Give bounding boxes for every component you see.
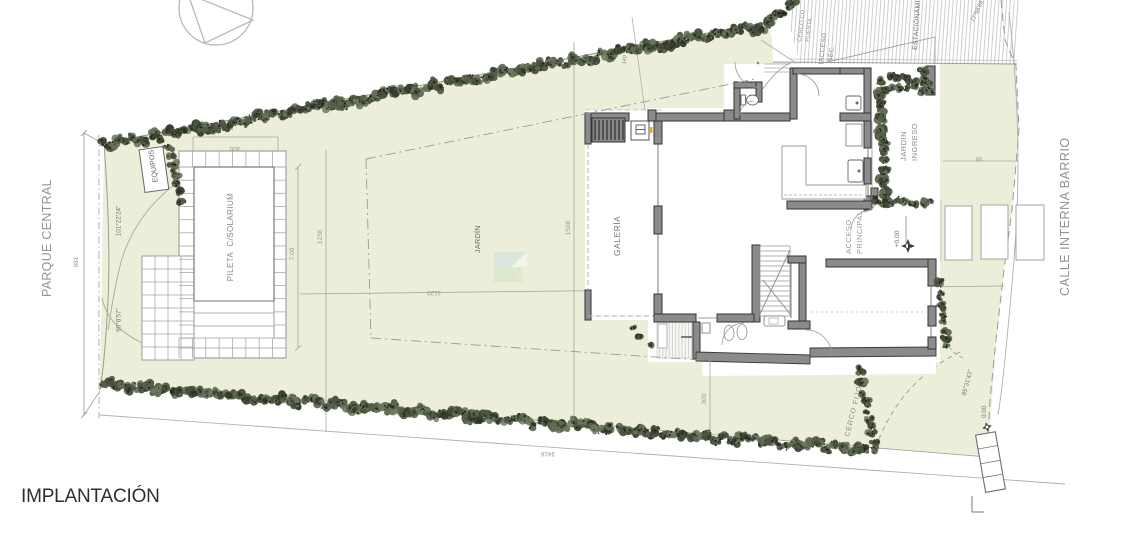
svg-text:981: 981 (73, 256, 80, 267)
svg-text:300: 300 (701, 393, 708, 404)
svg-text:INGRESO: INGRESO (910, 123, 919, 161)
svg-text:JARDIN: JARDIN (899, 131, 908, 161)
svg-text:PILETA C/SOLARIUM: PILETA C/SOLARIUM (226, 193, 235, 281)
svg-text:101°22'24": 101°22'24" (115, 206, 123, 236)
svg-text:PARQUE CENTRAL: PARQUE CENTRAL (40, 179, 54, 297)
svg-text:GALERÍA: GALERÍA (612, 216, 622, 256)
svg-text:JARDÍN: JARDÍN (473, 225, 482, 253)
svg-text:1238: 1238 (317, 229, 324, 244)
svg-text:CALLE INTERNA BARRIO: CALLE INTERNA BARRIO (1058, 137, 1072, 296)
svg-text:PRINCIPAL: PRINCIPAL (855, 210, 864, 254)
svg-text:IMPLANTACIÓN: IMPLANTACIÓN (21, 485, 160, 507)
svg-text:3416: 3416 (540, 450, 555, 457)
svg-text:90°8'57": 90°8'57" (115, 308, 123, 331)
svg-text:ACCESO: ACCESO (844, 219, 853, 254)
svg-text:1120: 1120 (427, 289, 441, 296)
svg-text:+0.00: +0.00 (894, 230, 901, 247)
svg-text:0.00: 0.00 (981, 405, 988, 418)
svg-text:7.00: 7.00 (289, 247, 296, 260)
svg-text:1508: 1508 (565, 220, 572, 235)
svg-text:140: 140 (621, 55, 628, 65)
svg-text:98: 98 (975, 155, 982, 161)
